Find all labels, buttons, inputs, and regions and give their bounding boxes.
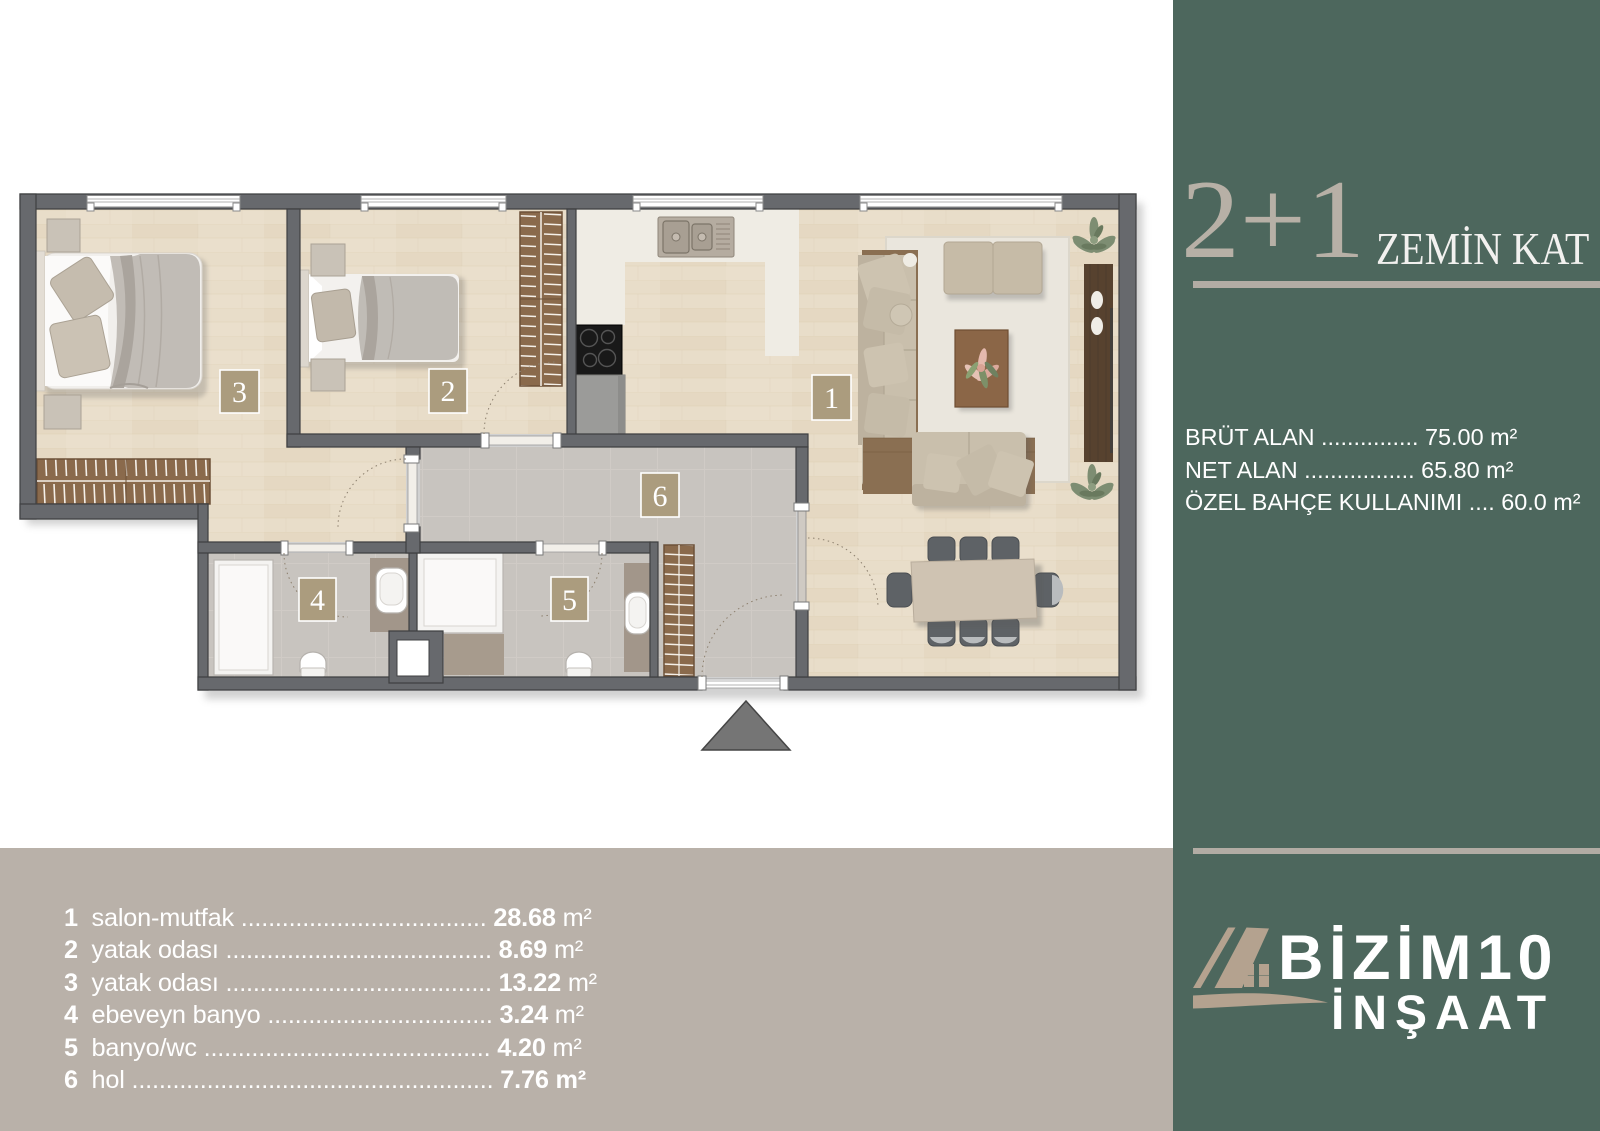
svg-text:6: 6 bbox=[653, 480, 668, 513]
svg-text:3: 3 bbox=[232, 376, 247, 409]
svg-text:2: 2 bbox=[441, 375, 456, 408]
svg-text:4: 4 bbox=[310, 584, 325, 617]
svg-text:5: 5 bbox=[562, 584, 577, 617]
svg-text:1: 1 bbox=[824, 382, 839, 415]
